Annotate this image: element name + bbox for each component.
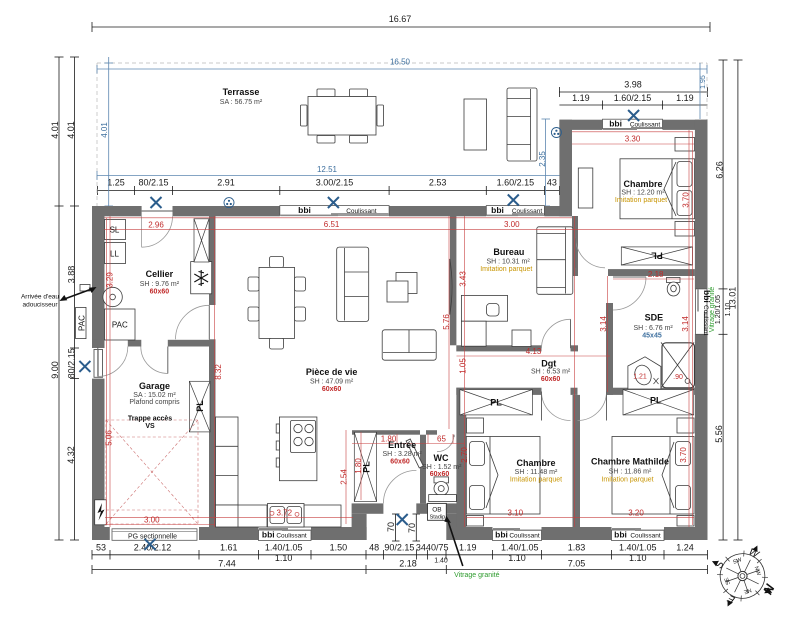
svg-text:9.00: 9.00 [50,361,60,379]
svg-text:SH : 10.31 m²: SH : 10.31 m² [487,259,531,266]
svg-text:PL: PL [650,396,662,406]
svg-text:70: 70 [407,523,417,533]
svg-text:5.76: 5.76 [442,314,451,330]
svg-text:1.83: 1.83 [568,543,586,553]
svg-text:adoucisseur: adoucisseur [22,302,58,309]
svg-text:90/2.15: 90/2.15 [384,543,414,553]
svg-text:Vitrage granité: Vitrage granité [709,287,716,333]
svg-text:53: 53 [96,543,106,553]
svg-text:Imitation parquet: Imitation parquet [615,197,667,204]
svg-text:.90: .90 [673,374,683,381]
svg-text:13.01: 13.01 [728,287,738,310]
svg-text:1.50: 1.50 [330,543,348,553]
svg-text:60x60: 60x60 [541,376,561,383]
svg-text:1.24: 1.24 [676,543,694,553]
svg-text:1.19: 1.19 [676,93,694,103]
svg-text:16.50: 16.50 [390,58,411,67]
svg-text:SH : 47.09 m²: SH : 47.09 m² [310,379,354,386]
svg-text:SH : 1.52 m²: SH : 1.52 m² [422,464,462,471]
svg-text:3.30: 3.30 [625,135,641,144]
svg-text:2.18: 2.18 [399,559,417,569]
svg-text:Coulissant: Coulissant [346,208,377,215]
svg-text:3.00/2.15: 3.00/2.15 [316,178,354,188]
svg-text:Entrée: Entrée [388,440,416,450]
svg-text:Coulissant: Coulissant [702,305,709,336]
svg-text:1.05: 1.05 [459,358,468,374]
svg-text:48: 48 [369,543,379,553]
svg-text:1.19: 1.19 [459,543,477,553]
svg-text:Plafond compris: Plafond compris [129,399,180,406]
svg-text:60x60: 60x60 [322,386,342,393]
svg-text:Cellier: Cellier [146,269,174,279]
svg-text:1.40/1.05: 1.40/1.05 [501,543,539,553]
svg-text:SH : 9.76 m²: SH : 9.76 m² [140,281,180,288]
svg-text:Coulissant: Coulissant [630,532,661,539]
svg-text:PG sectionnelle: PG sectionnelle [128,534,177,541]
svg-text:1.21: 1.21 [633,374,647,381]
svg-text:1.80: 1.80 [354,458,363,474]
svg-text:1.10: 1.10 [275,553,293,563]
svg-text:3.14: 3.14 [681,316,690,332]
svg-text:1.40/1.05: 1.40/1.05 [619,543,657,553]
svg-text:SH : 12.20 m²: SH : 12.20 m² [621,190,665,197]
svg-text:bbi: bbi [491,205,504,215]
svg-text:Bureau: Bureau [493,247,524,257]
svg-text:1.95: 1.95 [700,75,707,89]
svg-text:Dgt: Dgt [541,359,556,369]
svg-text:4.01: 4.01 [66,121,76,139]
svg-text:VS: VS [145,423,155,430]
svg-text:OB: OB [432,507,441,514]
svg-text:Arrivée d'eau: Arrivée d'eau [21,294,59,301]
svg-text:4.13: 4.13 [526,347,542,356]
svg-text:PL: PL [195,400,205,412]
svg-text:6.51: 6.51 [324,220,340,229]
svg-text:Vitrage granité: Vitrage granité [454,572,500,579]
svg-text:SA : 15.02 m²: SA : 15.02 m² [133,392,176,399]
svg-text:Chambre: Chambre [516,458,555,468]
svg-text:SL: SL [110,226,120,235]
svg-text:65: 65 [437,435,446,444]
svg-text:2.96: 2.96 [148,221,164,230]
svg-text:3440/75: 3440/75 [416,543,449,553]
svg-text:1.60/2.15: 1.60/2.15 [614,93,652,103]
svg-text:3.98: 3.98 [624,80,642,90]
svg-text:Chambre Mathilde: Chambre Mathilde [591,457,669,467]
svg-text:3.43: 3.43 [459,271,468,287]
svg-text:3.00: 3.00 [504,220,520,229]
svg-text:3.72: 3.72 [277,509,293,518]
svg-text:1.61: 1.61 [220,543,238,553]
svg-text:3.88: 3.88 [67,266,77,284]
svg-text:1.19: 1.19 [572,93,590,103]
svg-text:1.40: 1.40 [434,558,448,565]
svg-text:Coulissant: Coulissant [630,121,661,128]
svg-text:43: 43 [547,178,557,188]
svg-text:PL: PL [490,398,502,408]
svg-text:LL: LL [110,250,119,259]
svg-text:2.54: 2.54 [340,469,349,485]
svg-text:PL: PL [651,251,663,261]
svg-text:bbi: bbi [262,530,275,540]
svg-text:Terrasse: Terrasse [223,87,260,97]
svg-text:WC: WC [434,453,449,463]
svg-text:Chambre: Chambre [623,179,662,189]
svg-text:Imitation parquet: Imitation parquet [480,266,532,273]
svg-text:Coulissant: Coulissant [509,532,540,539]
svg-text:1.25: 1.25 [107,178,125,188]
svg-text:SH : 3.28 m²: SH : 3.28 m² [382,451,422,458]
svg-text:3.70: 3.70 [679,447,688,463]
svg-text:Imitation parquet: Imitation parquet [510,477,562,484]
svg-text:12.51: 12.51 [317,165,338,174]
svg-text:bbi: bbi [495,530,508,540]
svg-text:60x60: 60x60 [150,289,170,296]
svg-text:Garage: Garage [139,381,170,391]
svg-text:bbi: bbi [298,205,311,215]
svg-text:Stadip: Stadip [430,514,446,520]
svg-text:4.01: 4.01 [100,122,109,138]
svg-text:16.67: 16.67 [389,14,412,24]
svg-text:Trappe accès: Trappe accès [128,416,172,423]
svg-text:Coulissant: Coulissant [276,532,307,539]
svg-text:3.70: 3.70 [682,192,691,208]
svg-text:PL: PL [362,461,372,473]
svg-text:SH : 11.48 m²: SH : 11.48 m² [515,469,558,476]
svg-text:1.60/2.15: 1.60/2.15 [497,178,535,188]
svg-text:2.53: 2.53 [429,178,447,188]
svg-text:3.10: 3.10 [508,508,524,517]
svg-text:2.91: 2.91 [217,178,235,188]
svg-text:45x45: 45x45 [642,333,662,340]
svg-text:PAC: PAC [112,321,128,330]
svg-text:5.56: 5.56 [714,425,724,443]
svg-text:SDE: SDE [645,313,664,323]
svg-text:SH : 6.76 m²: SH : 6.76 m² [633,325,673,332]
svg-text:70: 70 [386,522,396,532]
svg-text:4.01: 4.01 [50,121,60,139]
svg-text:SH : 6.53 m²: SH : 6.53 m² [531,369,571,376]
svg-text:bbi: bbi [614,530,627,540]
svg-text:2.35: 2.35 [538,151,547,167]
svg-text:SA : 56.75 m²: SA : 56.75 m² [220,99,263,106]
svg-text:7.44: 7.44 [218,559,236,569]
svg-text:3.20: 3.20 [628,508,644,517]
svg-text:5.06: 5.06 [105,430,114,446]
svg-text:Imitation parquet: Imitation parquet [601,477,653,484]
svg-text:PAC: PAC [77,315,86,331]
svg-text:2.70: 2.70 [460,447,469,463]
svg-text:1.10: 1.10 [508,553,526,563]
svg-text:8.32: 8.32 [214,364,223,380]
svg-text:1.10: 1.10 [629,553,647,563]
svg-text:3.29: 3.29 [106,272,115,288]
svg-text:80/2.15: 80/2.15 [67,348,77,378]
svg-text:Pièce de vie: Pièce de vie [306,367,358,377]
svg-text:4.32: 4.32 [66,446,76,464]
svg-text:SH : 11.86 m²: SH : 11.86 m² [609,469,652,476]
svg-text:Coulissant: Coulissant [512,208,543,215]
svg-text:60x60: 60x60 [430,471,450,478]
svg-text:3.14: 3.14 [599,316,608,332]
svg-text:1.40/1.05: 1.40/1.05 [265,543,303,553]
svg-text:bbi: bbi [609,119,622,129]
svg-text:7.05: 7.05 [568,559,586,569]
svg-text:80/2.15: 80/2.15 [138,178,168,188]
svg-text:60x60: 60x60 [390,459,410,466]
svg-text:3.00: 3.00 [144,516,160,525]
svg-text:2.18: 2.18 [648,270,664,279]
svg-text:6.26: 6.26 [715,161,725,179]
